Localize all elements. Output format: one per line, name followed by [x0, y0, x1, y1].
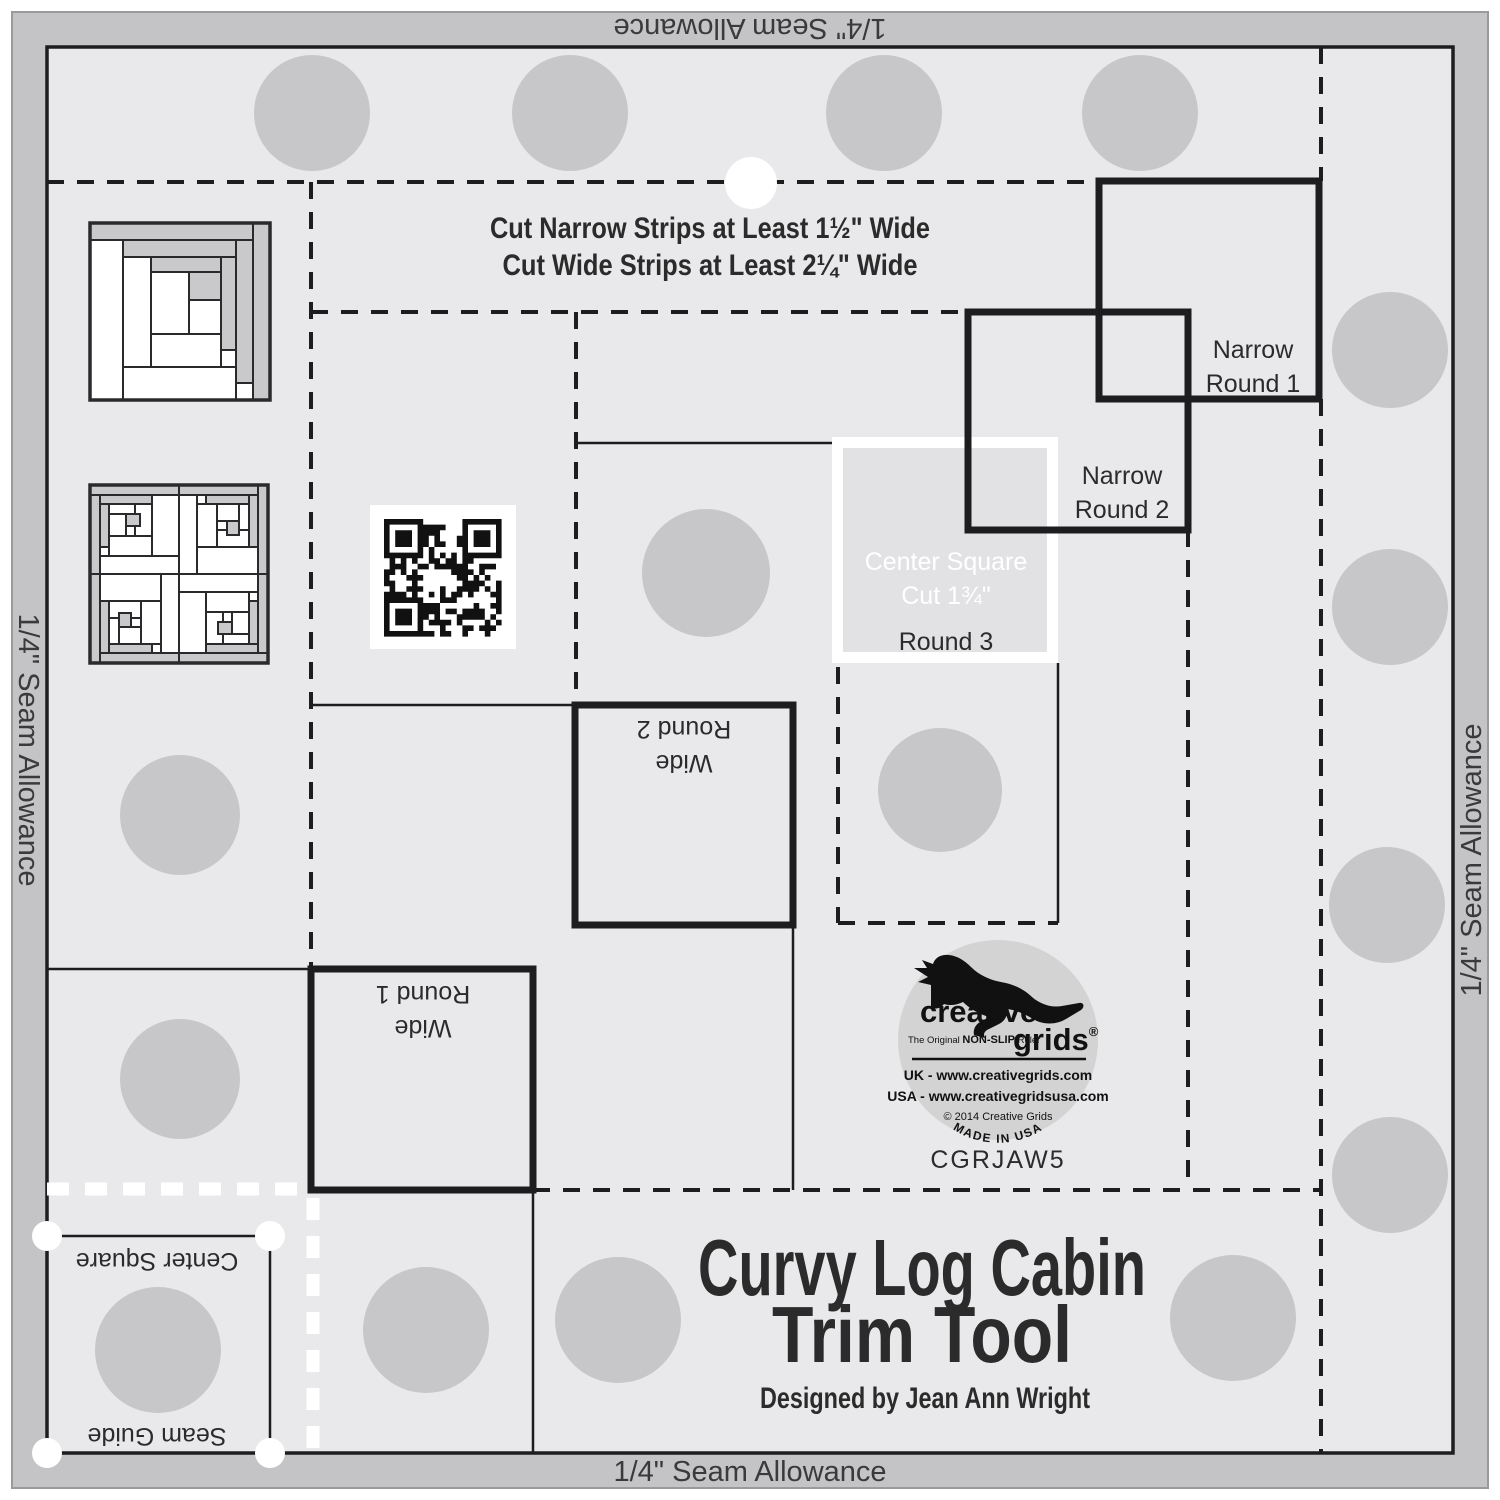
- instruction-line-2: Cut Wide Strips at Least 2¼" Wide: [503, 249, 918, 282]
- log-cabin-quadrant: [179, 574, 268, 663]
- logo-uk-url: UK - www.creativegrids.com: [904, 1067, 1093, 1083]
- log: [123, 257, 151, 367]
- svg-text:Seam Guide: Seam Guide: [88, 1422, 227, 1450]
- seam-guide-corner-dot: [32, 1438, 62, 1468]
- grip-dot: [555, 1257, 681, 1383]
- log: [189, 272, 221, 300]
- qr-code-icon: [370, 505, 516, 649]
- grip-dot: [1082, 55, 1198, 171]
- grip-dot: [120, 1019, 240, 1139]
- logo-usa-url: USA - www.creativegridsusa.com: [887, 1088, 1108, 1104]
- grip-dot: [1170, 1255, 1296, 1381]
- svg-text:Round 2: Round 2: [637, 715, 732, 743]
- grip-dot: [95, 1287, 221, 1413]
- log: [189, 300, 221, 334]
- grip-dot: [826, 55, 942, 171]
- log: [90, 223, 253, 240]
- svg-text:Round 1: Round 1: [376, 980, 471, 1008]
- log: [151, 334, 221, 367]
- product-title-line2: Trim Tool: [772, 1290, 1072, 1379]
- narrow-round-2-label-line1: Narrow: [1082, 462, 1164, 490]
- seam-guide-corner-dot: [255, 1438, 285, 1468]
- round-3-label: Round 3: [899, 628, 994, 656]
- grip-dot: [642, 509, 770, 637]
- svg-text:Wide: Wide: [395, 1014, 452, 1042]
- sku-code: CGRJAW5: [930, 1146, 1065, 1174]
- center-square-label-line1: Center Square: [865, 548, 1028, 576]
- logo-brand-line2: grids®: [1013, 1022, 1099, 1057]
- grip-dot: [878, 728, 1002, 852]
- grip-dot: [120, 755, 240, 875]
- svg-text:Center Square: Center Square: [76, 1247, 239, 1275]
- grip-dot: [1329, 847, 1445, 963]
- log: [123, 367, 236, 400]
- log-cabin-quadrant: [90, 574, 179, 663]
- log: [90, 240, 123, 400]
- narrow-round-1-label-line1: Narrow: [1213, 336, 1295, 364]
- seam-allowance-label-bottom: 1/4" Seam Allowance: [613, 1456, 886, 1488]
- instruction-line-1: Cut Narrow Strips at Least 1½" Wide: [490, 212, 930, 245]
- hole-dot: [725, 157, 777, 209]
- log: [123, 240, 236, 257]
- seam-allowance-label-left: 1/4" Seam Allowance: [12, 613, 44, 886]
- log-cabin-quadrant: [90, 485, 179, 574]
- log-cabin-block-icon: [90, 223, 270, 400]
- log: [151, 257, 221, 272]
- seam-allowance-label-top: 1/4" Seam Allowance: [613, 12, 886, 44]
- svg-text:Wide: Wide: [656, 749, 713, 777]
- grip-dot: [254, 55, 370, 171]
- seam-guide-corner-dot: [255, 1221, 285, 1251]
- seam-guide-corner-dot: [32, 1221, 62, 1251]
- log: [253, 223, 270, 400]
- log: [151, 272, 189, 334]
- grip-dot: [1332, 549, 1448, 665]
- log: [236, 240, 253, 383]
- grip-dot: [363, 1267, 489, 1393]
- narrow-round-1-label-line2: Round 1: [1206, 370, 1301, 398]
- grip-dot: [1332, 1117, 1448, 1233]
- seam-guide-center-square-label: Center Square: [76, 1247, 239, 1275]
- curvy-log-cabin-trim-tool-ruler: creative. The Original NON-SLIP Ruler gr…: [0, 0, 1500, 1500]
- narrow-round-2-label-line2: Round 2: [1075, 496, 1170, 524]
- grip-dot: [1332, 292, 1448, 408]
- seam-allowance-label-right: 1/4" Seam Allowance: [1456, 723, 1488, 996]
- ruler-product-image: creative. The Original NON-SLIP Ruler gr…: [0, 0, 1500, 1500]
- center-square-label-line2: Cut 1¾": [901, 582, 990, 610]
- designer-credit: Designed by Jean Ann Wright: [760, 1382, 1090, 1415]
- log: [221, 257, 236, 350]
- grip-dot: [512, 55, 628, 171]
- log-cabin-quadrant: [179, 485, 268, 574]
- seam-guide-label: Seam Guide: [88, 1422, 227, 1450]
- four-block-log-cabin-icon: [90, 485, 268, 663]
